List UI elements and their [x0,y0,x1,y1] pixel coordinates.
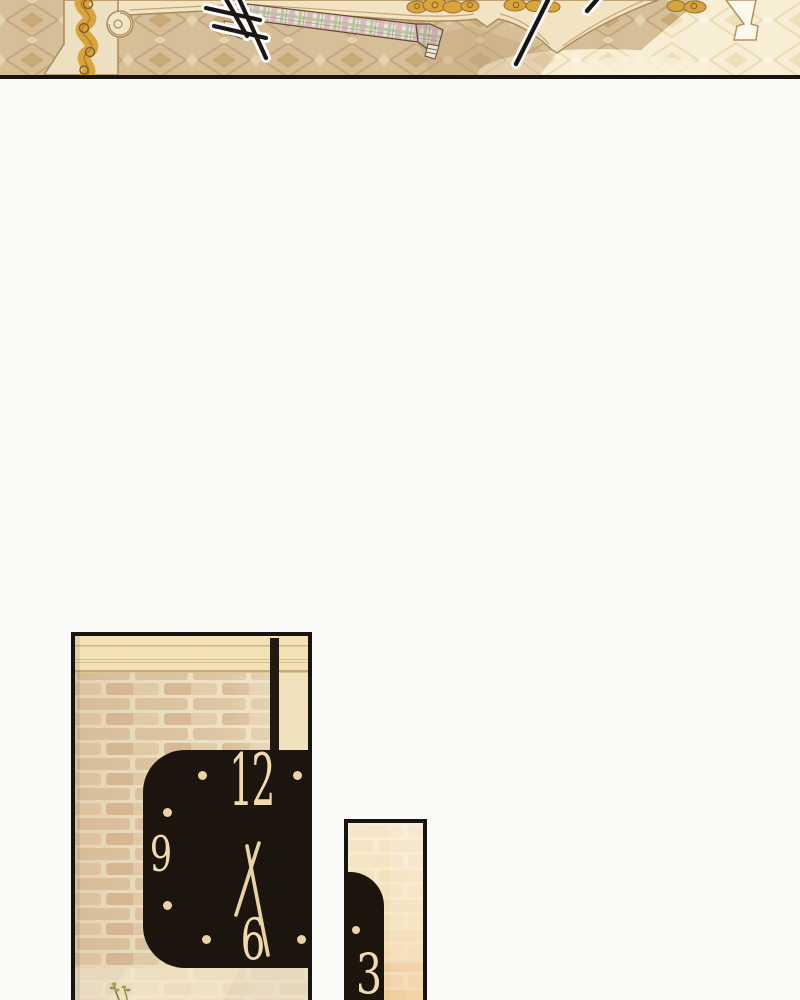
scroll-cylinder [107,11,133,37]
panel-clock-small: 3 [344,819,427,1000]
panel-clock-large: 12 9 6 [71,632,312,1000]
plant-sprig [103,978,139,1000]
clock-numeral-3: 3 [347,946,392,1000]
clock-hands [75,636,308,1000]
panel-bedroom-fragment [0,0,800,79]
bedroom-scene-art [0,0,800,79]
minute-hand [247,846,268,955]
comic-page: 12 9 6 [0,0,800,1000]
gold-scroll-ornament [80,0,95,76]
panel-border-bottom [0,75,800,79]
clock-hour-dot [352,926,360,934]
